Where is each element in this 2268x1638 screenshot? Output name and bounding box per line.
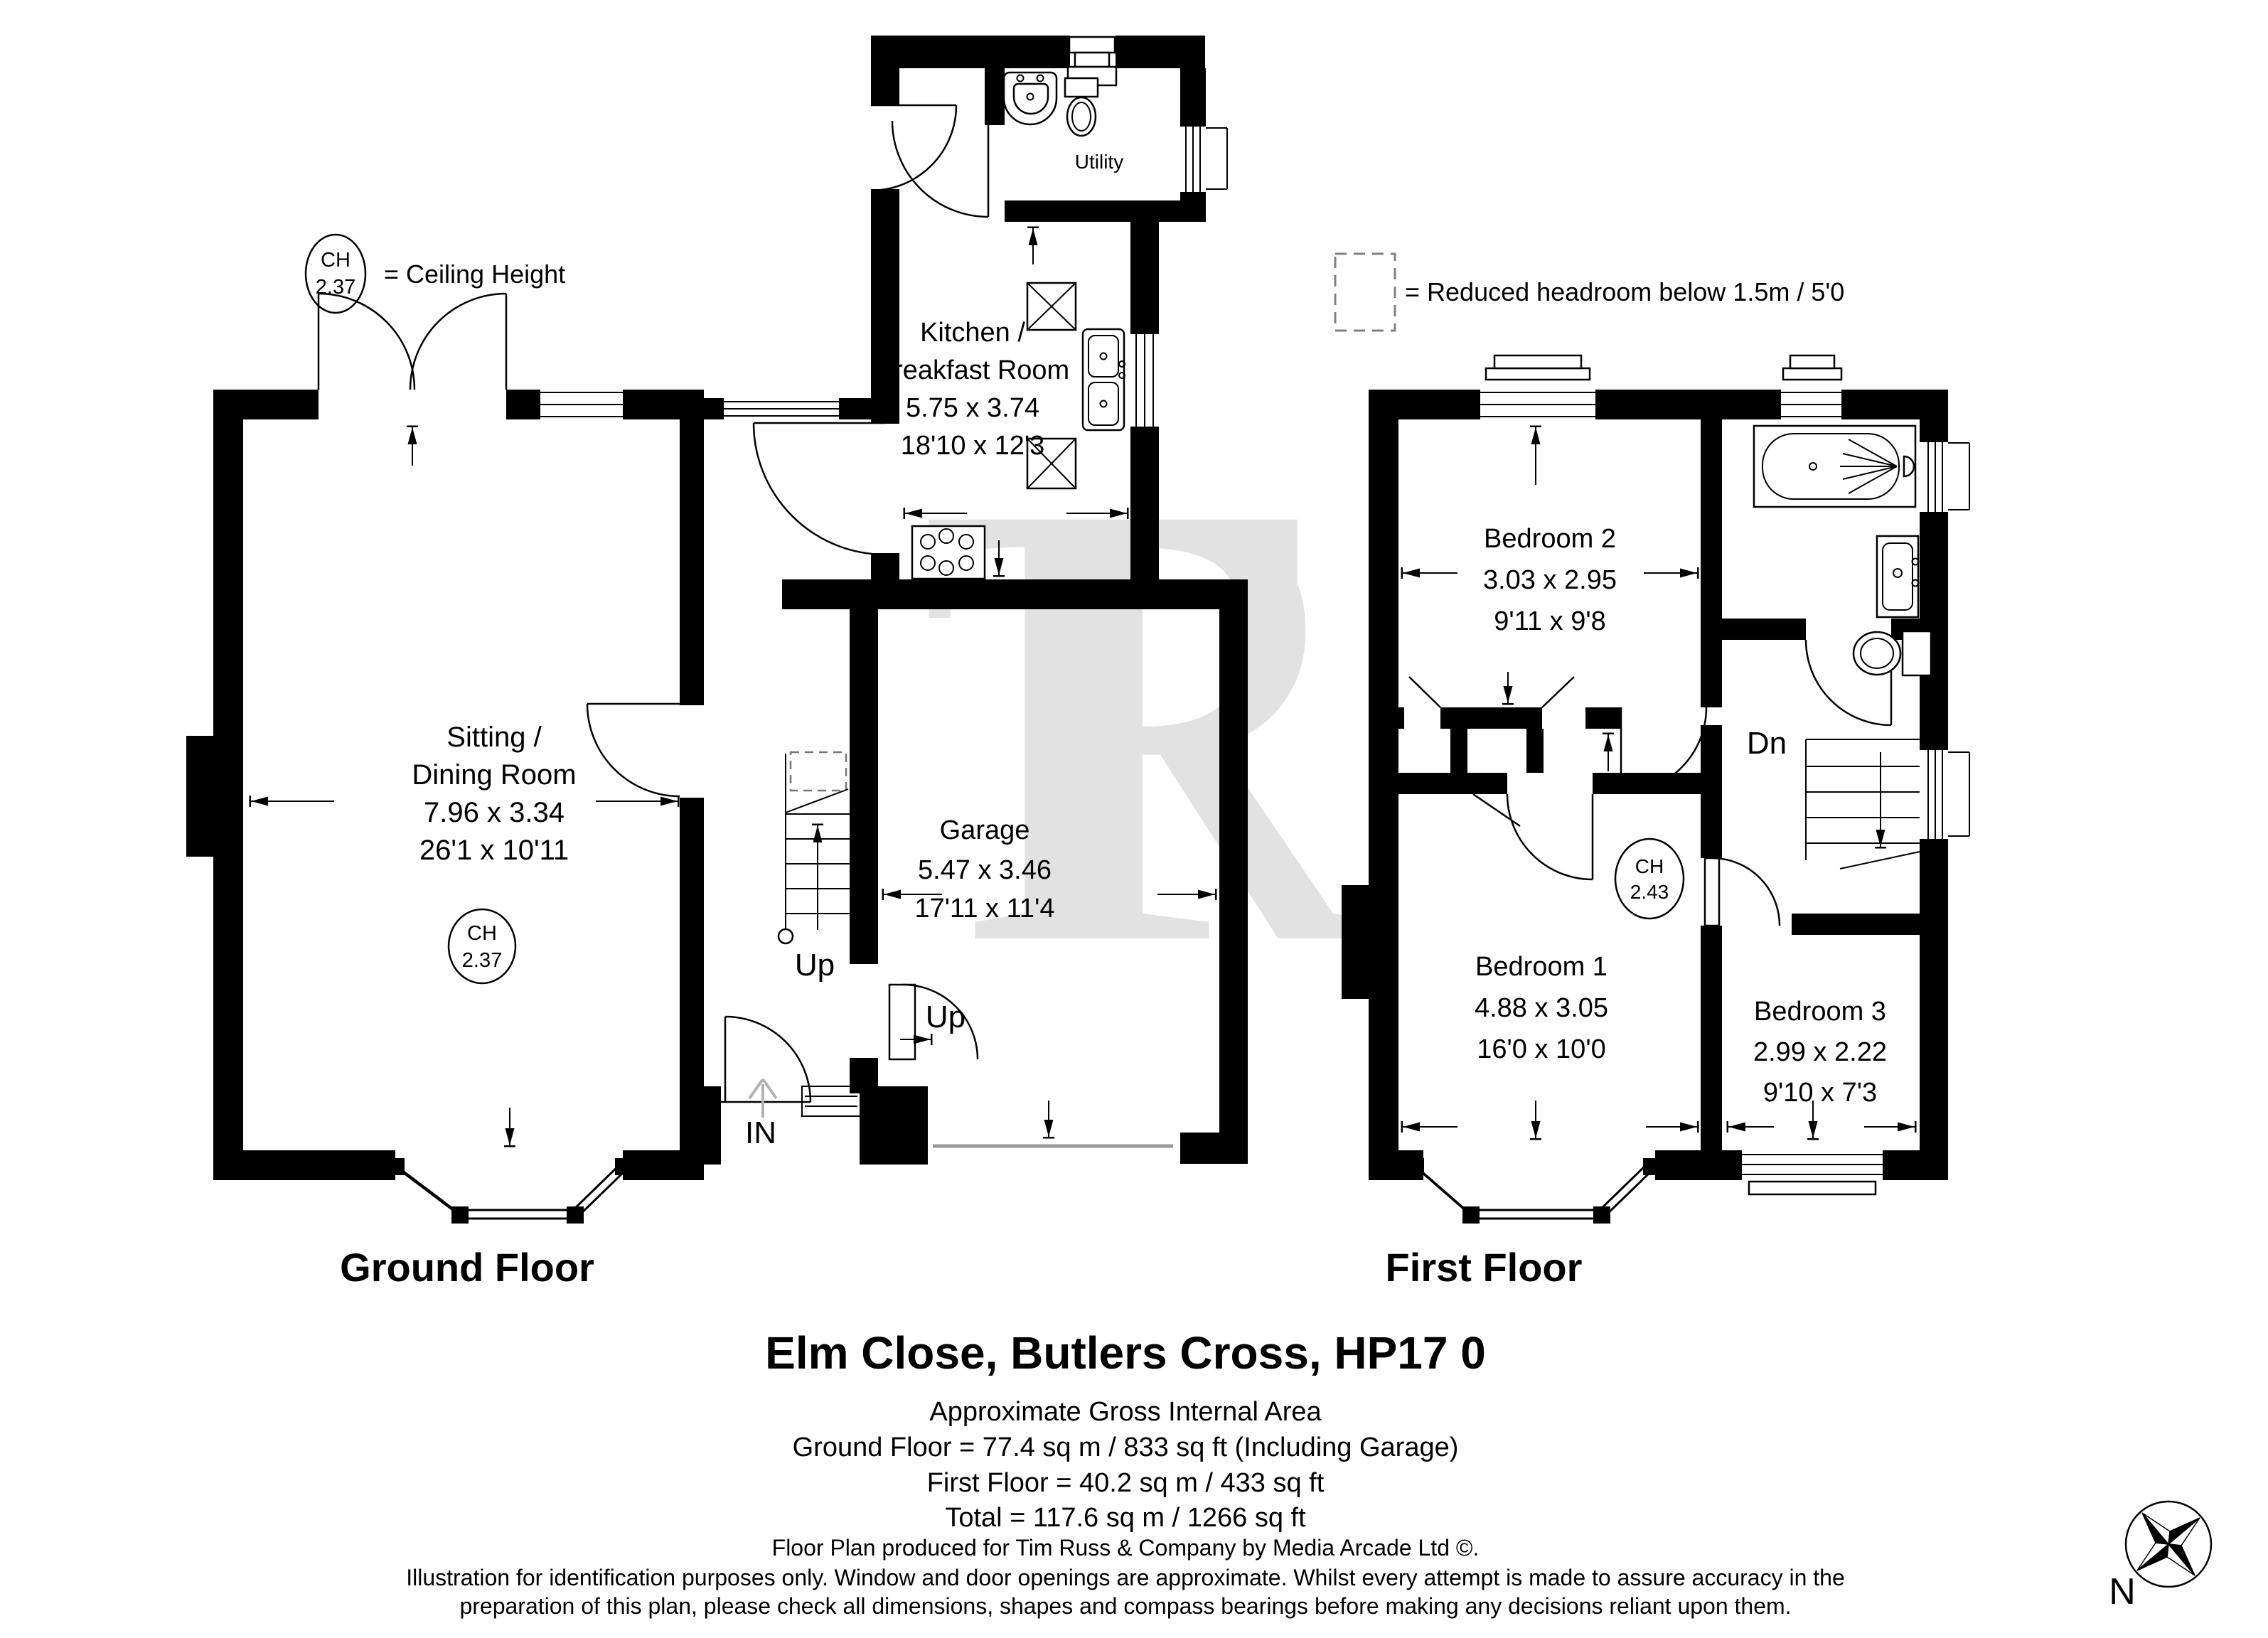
kitchen-appliance-1 [1027,283,1076,330]
bedroom3-label: Bedroom 3 [1754,997,1886,1027]
ff-ch-value: 2.43 [1630,881,1669,903]
sitting-dim-metric: 7.96 x 3.34 [424,797,565,828]
bedroom1-dim-metric: 4.88 x 3.05 [1475,993,1608,1023]
footer-disclaimer-1: Illustration for identification purposes… [406,1565,1845,1590]
bath-tub [1754,426,1915,507]
entrance-in-label: IN [745,1115,776,1150]
bay-window-sitting [387,1158,632,1224]
first-floor-plan: Bedroom 2 3.03 x 2.95 9'11 x 9'8 Dn CH 2… [1342,355,1969,1224]
garage-label: Garage [940,815,1030,845]
floorplan-canvas: TR CH 2.37 = Ceiling Height = Reduced he… [0,0,2268,1638]
area-first: First Floor = 40.2 sq m / 433 sq ft [927,1468,1325,1498]
bay-window-bedroom1 [1407,1158,1660,1224]
legend-ceiling-height: CH 2.37 = Ceiling Height [306,235,565,313]
back-door [871,105,956,191]
legend-reduced-caption: = Reduced headroom below 1.5m / 5'0 [1405,277,1844,306]
utility-toilet [1065,78,1098,136]
first-floor-ceiling-height: CH 2.43 [1615,839,1684,919]
stairs-down-label: Dn [1747,726,1787,761]
sitting-room-door [587,704,680,796]
kitchen-dim-metric: 5.75 x 3.74 [906,393,1039,423]
bathroom-toilet [1854,631,1931,675]
bedroom3-dim-metric: 2.99 x 2.22 [1753,1037,1887,1067]
garage-up-label: Up [926,1000,965,1034]
legend-ch-abbr: CH [321,249,351,272]
closet-doors [1409,677,1574,826]
bedroom2-label: Bedroom 2 [1484,524,1616,554]
bathroom-sink [1877,536,1919,617]
kitchen-label-1: Kitchen / [920,318,1025,348]
stairs-up-label: Up [795,948,835,983]
kitchen-dim-imperial: 18'10 x 12'3 [901,431,1045,461]
ground-floor-walls [186,36,1248,1180]
bedroom2-dim-metric: 3.03 x 2.95 [1483,565,1617,595]
utility-door [892,121,988,217]
area-ground: Ground Floor = 77.4 sq m / 833 sq ft (In… [793,1433,1459,1462]
kitchen-label-2: Breakfast Room [876,355,1069,385]
bedroom3-door [1705,858,1780,926]
sitting-label-2: Dining Room [412,759,576,791]
french-doors [319,294,506,390]
sitting-dim-imperial: 26'1 x 10'11 [419,835,569,866]
floorplan-page: TR CH 2.37 = Ceiling Height = Reduced he… [0,0,2268,1638]
garage-dim-imperial: 17'11 x 11'4 [915,894,1055,924]
hall-kitchen-door [754,423,885,555]
ground-floor-plan: Utility Kitchen / Breakfast Room 5.75 x … [186,36,1248,1224]
area-total: Total = 117.6 sq m / 1266 sq ft [945,1503,1306,1533]
area-heading: Approximate Gross Internal Area [929,1397,1322,1427]
bedroom3-dim-imperial: 9'10 x 7'3 [1763,1078,1877,1108]
bedroom1-door [1507,794,1593,879]
ground-stairs [779,752,850,943]
bedroom2-dim-imperial: 9'11 x 9'8 [1494,606,1605,636]
kitchen-sink [1083,329,1125,430]
footer-credit: Floor Plan produced for Tim Russ & Compa… [772,1535,1480,1561]
compass-north-label: N [2109,1571,2136,1612]
utility-label: Utility [1075,151,1123,173]
sitting-label-1: Sitting / [446,722,542,753]
entrance-arrow-icon [749,1079,776,1118]
bedroom1-dim-imperial: 16'0 x 10'0 [1477,1034,1605,1064]
sitting-ch-abbr: CH [467,922,497,945]
legend-reduced-headroom: = Reduced headroom below 1.5m / 5'0 [1335,254,1844,331]
page-title: Elm Close, Butlers Cross, HP17 0 [765,1327,1486,1379]
ground-dim-arrows [250,227,1216,1146]
kitchen-hob [912,526,985,579]
front-door [720,1017,811,1102]
sitting-ch-value: 2.37 [462,949,502,972]
compass-icon: N [2109,1501,2211,1612]
first-floor-label: First Floor [1386,1245,1583,1290]
legend-ch-caption: = Ceiling Height [384,259,565,289]
bedroom1-label: Bedroom 1 [1475,952,1608,982]
garage-dim-metric: 5.47 x 3.46 [918,855,1052,885]
ff-ch-abbr: CH [1635,855,1664,877]
footer-disclaimer-2: preparation of this plan, please check a… [459,1593,1791,1619]
ground-floor-label: Ground Floor [340,1245,594,1290]
utility-sink [1004,73,1057,124]
first-floor-stairs [1806,739,1920,869]
sitting-ceiling-height: CH 2.37 [449,909,515,983]
